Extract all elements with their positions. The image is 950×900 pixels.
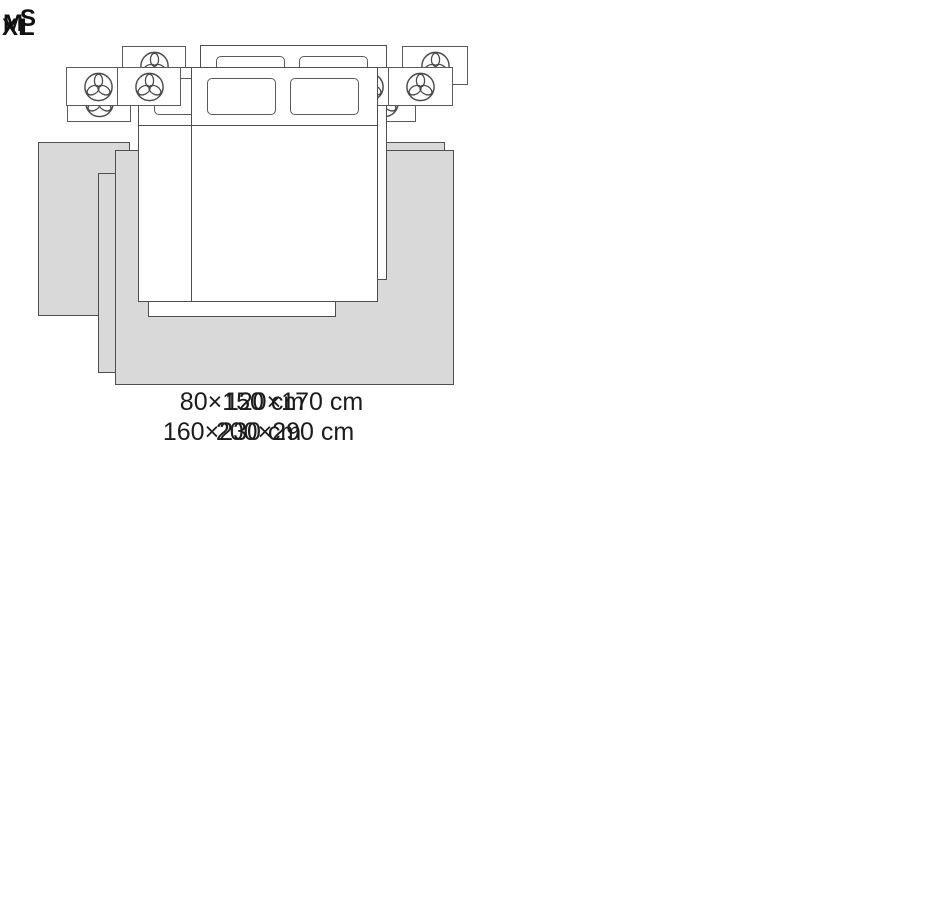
dimension-caption: 200×290 cm [216, 420, 354, 445]
pillow-right [290, 78, 359, 115]
pillow-left [207, 78, 276, 115]
size-label: XL [2, 15, 33, 41]
bed-headboard [192, 68, 377, 126]
plant-icon [131, 70, 168, 104]
plant-icon [80, 70, 117, 104]
nightstand-left [117, 67, 181, 106]
plant-icon [402, 70, 439, 104]
bed [191, 67, 378, 302]
nightstand-right [388, 67, 453, 106]
